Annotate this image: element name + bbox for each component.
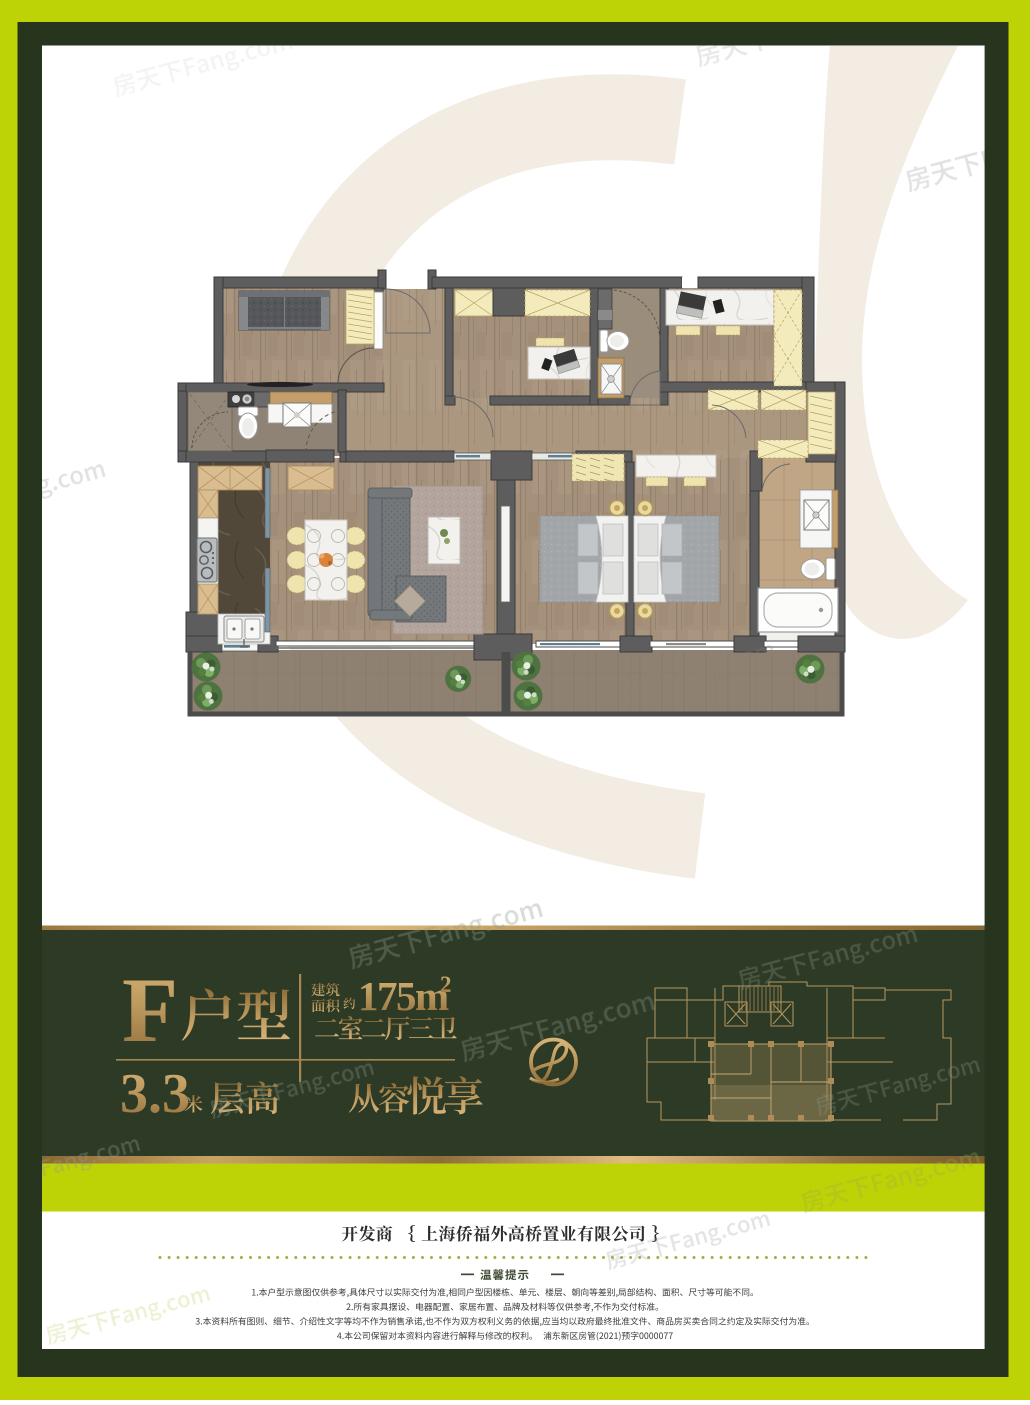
- svg-text:3.3: 3.3: [120, 1063, 190, 1125]
- svg-text:175m: 175m: [358, 973, 449, 1019]
- svg-text:2: 2: [440, 972, 452, 997]
- svg-text:F: F: [122, 959, 178, 1061]
